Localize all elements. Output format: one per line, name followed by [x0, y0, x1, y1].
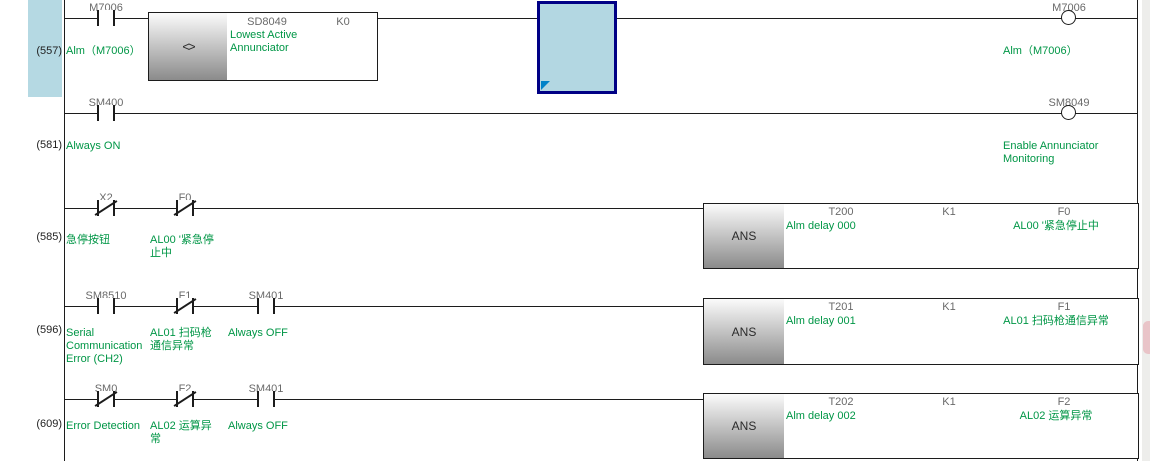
contact-no-sm8510[interactable] [97, 298, 115, 314]
contact-comment: Serial Communication Error (CH2) [66, 327, 148, 366]
contact-no-m7006[interactable] [97, 10, 115, 26]
ans-timer: T202 [801, 396, 881, 408]
coil-sm8049[interactable] [1061, 105, 1076, 120]
compare-block[interactable]: <> SD8049 K0 Lowest Active Annunciator [148, 12, 378, 81]
ans-flag-comment: AL00 '紧急停止中 [954, 220, 1150, 233]
ans-timer: T201 [801, 301, 881, 313]
rung-number: (581) [20, 139, 62, 151]
ans-timer-comment: Alm delay 002 [786, 410, 936, 423]
contact-comment: AL00 '紧急停 止中 [150, 234, 228, 260]
contact-comment: Always OFF [228, 420, 323, 433]
compare-operator: <> [149, 39, 227, 54]
ladder-editor-canvas[interactable]: (557) M7006 Alm（M7006） <> SD8049 K0 Lowe… [0, 0, 1150, 461]
coil-comment: Enable Annunciator Monitoring [1003, 140, 1133, 166]
power-line-581 [64, 113, 1137, 114]
left-power-rail [64, 0, 65, 461]
contact-comment: AL02 运算异 常 [150, 420, 228, 446]
ans-block[interactable]: ANS T201 Alm delay 001 K1 F1 AL01 扫码枪通信异… [703, 298, 1139, 365]
ans-constant: K1 [909, 301, 989, 313]
ans-flag-comment: AL01 扫码枪通信异常 [954, 315, 1150, 328]
coil-comment: Alm（M7006） [1003, 45, 1133, 58]
contact-comment: 急停按钮 [66, 234, 148, 247]
ans-block[interactable]: ANS T202 Alm delay 002 K1 F2 AL02 运算异常 [703, 393, 1139, 459]
ans-mnemonic: ANS [704, 325, 784, 339]
coil-m7006[interactable] [1061, 10, 1076, 25]
compare-operand2: K0 [317, 16, 369, 28]
contact-no-sm400[interactable] [97, 105, 115, 121]
rung-number: (609) [20, 418, 62, 430]
ans-flag: F1 [1024, 301, 1104, 313]
ans-flag: F0 [1024, 206, 1104, 218]
contact-comment: Alm（M7006） [66, 45, 148, 58]
ans-mnemonic: ANS [704, 229, 784, 243]
compare-operand1-comment: Lowest Active Annunciator [230, 29, 350, 55]
ans-block[interactable]: ANS T200 Alm delay 000 K1 F0 AL00 '紧急停止中 [703, 203, 1139, 269]
contact-no-sm401[interactable] [257, 391, 275, 407]
contact-no-sm401[interactable] [257, 298, 275, 314]
ans-timer: T200 [801, 206, 881, 218]
rung-number: (557) [20, 45, 62, 57]
edit-marker-icon [541, 81, 550, 90]
ans-flag: F2 [1024, 396, 1104, 408]
rung-number: (596) [20, 324, 62, 336]
cursor-cell[interactable] [537, 1, 617, 94]
ans-constant: K1 [909, 206, 989, 218]
rung-number: (585) [20, 231, 62, 243]
compare-operand1: SD8049 [229, 16, 305, 28]
contact-comment: Error Detection [66, 420, 148, 433]
ans-constant: K1 [909, 396, 989, 408]
ans-timer-comment: Alm delay 000 [786, 220, 936, 233]
contact-comment: Always OFF [228, 327, 323, 340]
ans-flag-comment: AL02 运算异常 [954, 410, 1150, 423]
ans-timer-comment: Alm delay 001 [786, 315, 936, 328]
contact-comment: Always ON [66, 140, 148, 153]
contact-comment: AL01 扫码枪 通信异常 [150, 327, 228, 353]
ans-mnemonic: ANS [704, 419, 784, 433]
